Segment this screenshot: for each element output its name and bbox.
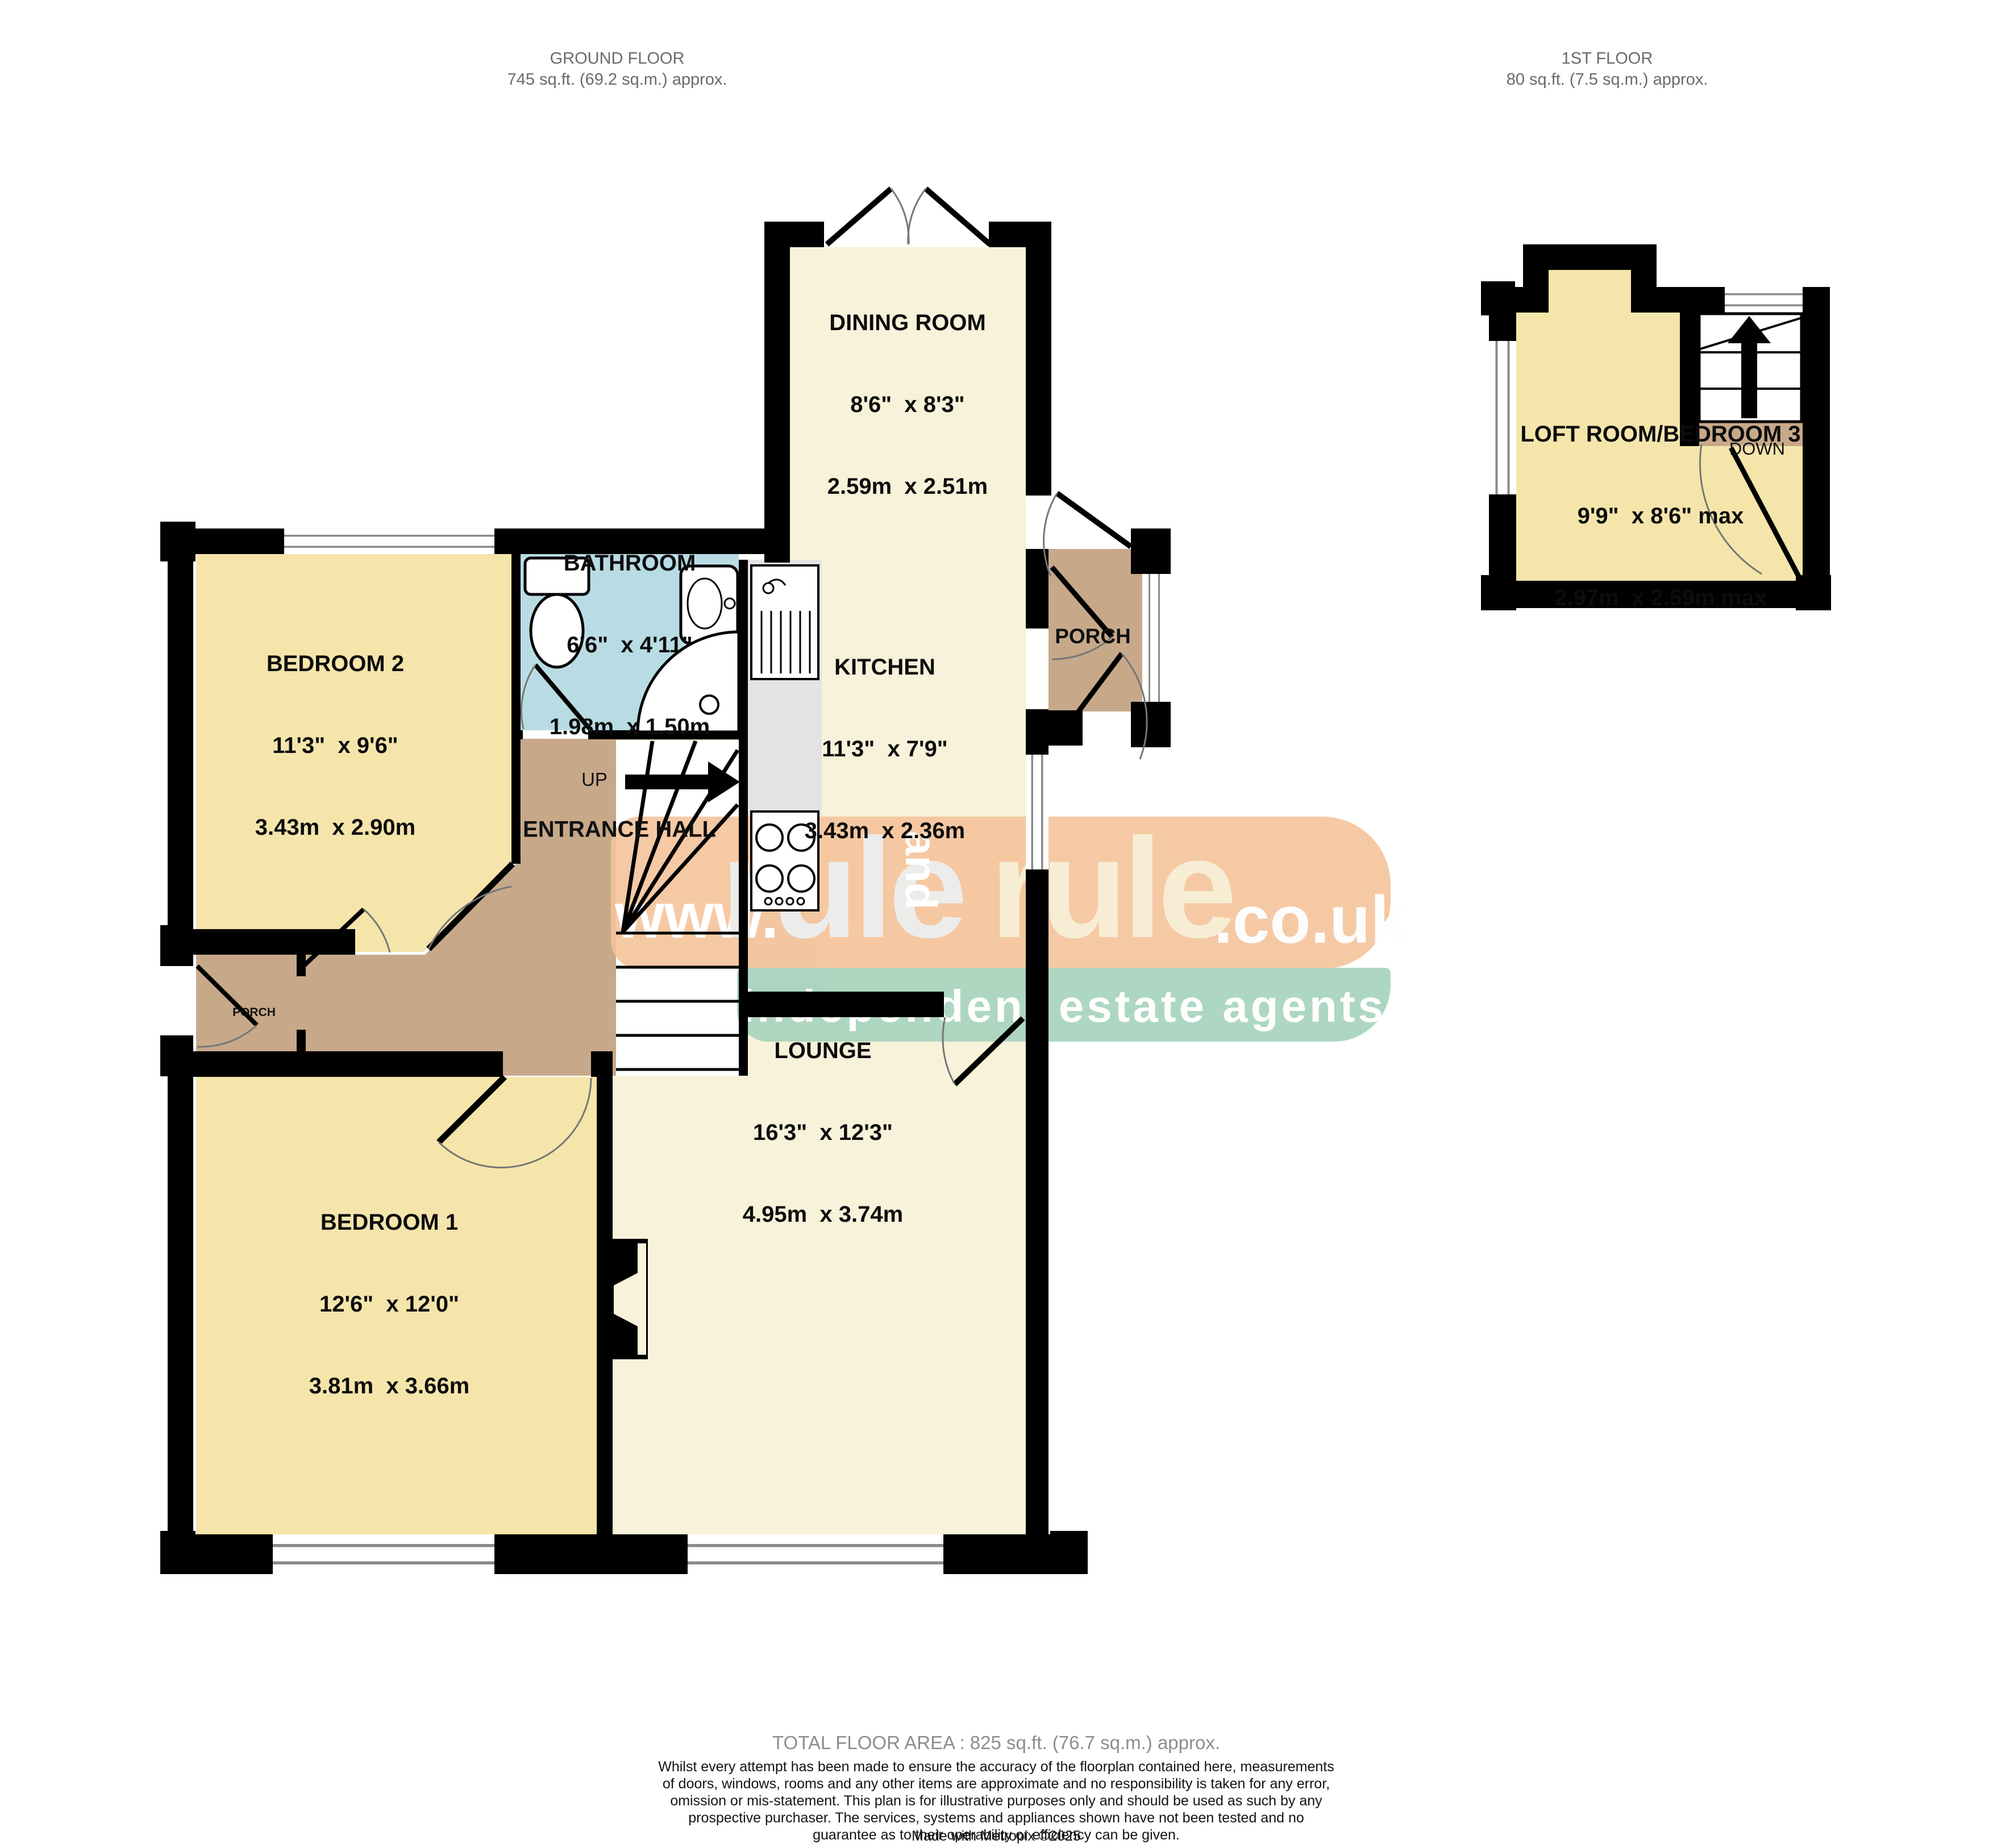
room-dim-imperial: 11'3" x 9'6" xyxy=(255,732,415,759)
total-floor-area: TOTAL FLOOR AREA : 825 sq.ft. (76.7 sq.m… xyxy=(772,1732,1220,1754)
room-dim-imperial: 12'6" x 12'0" xyxy=(309,1291,469,1318)
wall xyxy=(168,528,193,955)
wall xyxy=(1131,702,1171,747)
window-icon xyxy=(1143,574,1165,702)
first-floor-area: 80 sq.ft. (7.5 sq.m.) approx. xyxy=(1507,69,1708,90)
room-label-porch-left: PORCH xyxy=(232,1006,276,1019)
room-name: KITCHEN xyxy=(805,654,965,681)
room-dim-metric: 3.43m x 2.90m xyxy=(255,814,415,841)
room-name: BEDROOM 2 xyxy=(255,650,415,677)
wall xyxy=(160,522,195,561)
watermark-domain: .co.uk xyxy=(1214,886,1408,954)
wall xyxy=(1131,528,1171,574)
wall xyxy=(168,1051,193,1574)
room-name: BATHROOM xyxy=(550,550,710,577)
floorplan-page: GROUND FLOOR 745 sq.ft. (69.2 sq.m.) app… xyxy=(0,0,1993,1848)
window-icon xyxy=(284,528,494,554)
wall xyxy=(1796,575,1831,610)
wall xyxy=(597,1077,613,1534)
wall xyxy=(511,554,521,864)
wall xyxy=(297,1030,306,1051)
ground-floor-area: 745 sq.ft. (69.2 sq.m.) approx. xyxy=(507,69,727,90)
room-dim-metric: 3.43m x 2.36m xyxy=(805,817,965,844)
wall xyxy=(168,929,355,955)
wall xyxy=(160,925,193,966)
stairs-up-label: UP xyxy=(581,769,608,790)
room-label-dining: DINING ROOM 8'6" x 8'3" 2.59m x 2.51m xyxy=(827,255,988,555)
room-dim-imperial: 9'9" x 8'6" max xyxy=(1520,502,1800,530)
window-icon xyxy=(273,1534,494,1574)
loft-dormer-floor xyxy=(1549,270,1631,338)
wall xyxy=(1523,244,1549,313)
room-dim-imperial: 16'3" x 12'3" xyxy=(743,1119,903,1146)
first-floor-title: 1ST FLOOR xyxy=(1507,48,1708,69)
wall xyxy=(1026,549,1048,629)
credit-text: Made with Metropix ©2025 xyxy=(912,1828,1081,1845)
wall xyxy=(160,1035,193,1076)
room-name: DINING ROOM xyxy=(827,309,988,336)
room-label-porch-right: PORCH xyxy=(1055,625,1131,648)
stairs-down-label: DOWN xyxy=(1729,439,1785,459)
wall xyxy=(160,1531,195,1574)
room-label-entrance-hall: ENTRANCE HALL xyxy=(523,817,716,843)
wall xyxy=(1631,244,1657,313)
wall xyxy=(1481,281,1515,315)
wall xyxy=(1026,869,1048,1574)
room-label-bedroom1: BEDROOM 1 12'6" x 12'0" 3.81m x 3.66m xyxy=(309,1154,469,1454)
window-icon xyxy=(688,1534,943,1574)
room-dim-metric: 4.95m x 3.74m xyxy=(743,1201,903,1228)
room-dim-imperial: 11'3" x 7'9" xyxy=(805,735,965,763)
room-label-kitchen: KITCHEN 11'3" x 7'9" 3.43m x 2.36m xyxy=(805,599,965,899)
room-dim-metric: 3.81m x 3.66m xyxy=(309,1372,469,1400)
wall xyxy=(297,955,306,976)
wall xyxy=(1657,287,1725,313)
wall xyxy=(511,730,523,739)
wall xyxy=(1481,575,1516,610)
wall xyxy=(494,1534,688,1574)
wall xyxy=(591,1051,613,1077)
wall xyxy=(764,222,824,247)
first-floor-header: 1ST FLOOR 80 sq.ft. (7.5 sq.m.) approx. xyxy=(1507,48,1708,90)
ground-floor-header: GROUND FLOOR 745 sq.ft. (69.2 sq.m.) app… xyxy=(507,48,727,90)
room-label-bathroom: BATHROOM 6'6" x 4'11" 1.98m x 1.50m xyxy=(550,495,710,795)
room-name: BEDROOM 1 xyxy=(309,1209,469,1236)
ground-floor-title: GROUND FLOOR xyxy=(507,48,727,69)
wall xyxy=(764,222,790,563)
room-dim-imperial: 8'6" x 8'3" xyxy=(827,391,988,418)
wall xyxy=(1803,287,1830,608)
wall xyxy=(1026,709,1048,755)
room-name: LOUNGE xyxy=(743,1037,903,1064)
wall xyxy=(1050,1531,1088,1574)
wall xyxy=(1048,710,1083,746)
room-dim-metric: 2.59m x 2.51m xyxy=(827,473,988,500)
french-doors-icon xyxy=(827,189,990,244)
wall xyxy=(168,1051,503,1077)
room-dim-metric: 1.98m x 1.50m xyxy=(550,713,710,740)
window-icon xyxy=(1489,341,1516,494)
room-label-lounge: LOUNGE 16'3" x 12'3" 4.95m x 3.74m xyxy=(743,983,903,1283)
wall xyxy=(1026,222,1051,496)
window-icon xyxy=(1725,287,1804,313)
room-label-bedroom2: BEDROOM 2 11'3" x 9'6" 3.43m x 2.90m xyxy=(255,596,415,896)
window-icon xyxy=(1026,755,1048,869)
room-dim-metric: 2.97m x 2.59m max xyxy=(1520,584,1800,611)
room-dim-imperial: 6'6" x 4'11" xyxy=(550,631,710,659)
room-label-loft: LOFT ROOM/BEDROOM 3 9'9" x 8'6" max 2.97… xyxy=(1520,366,1800,666)
